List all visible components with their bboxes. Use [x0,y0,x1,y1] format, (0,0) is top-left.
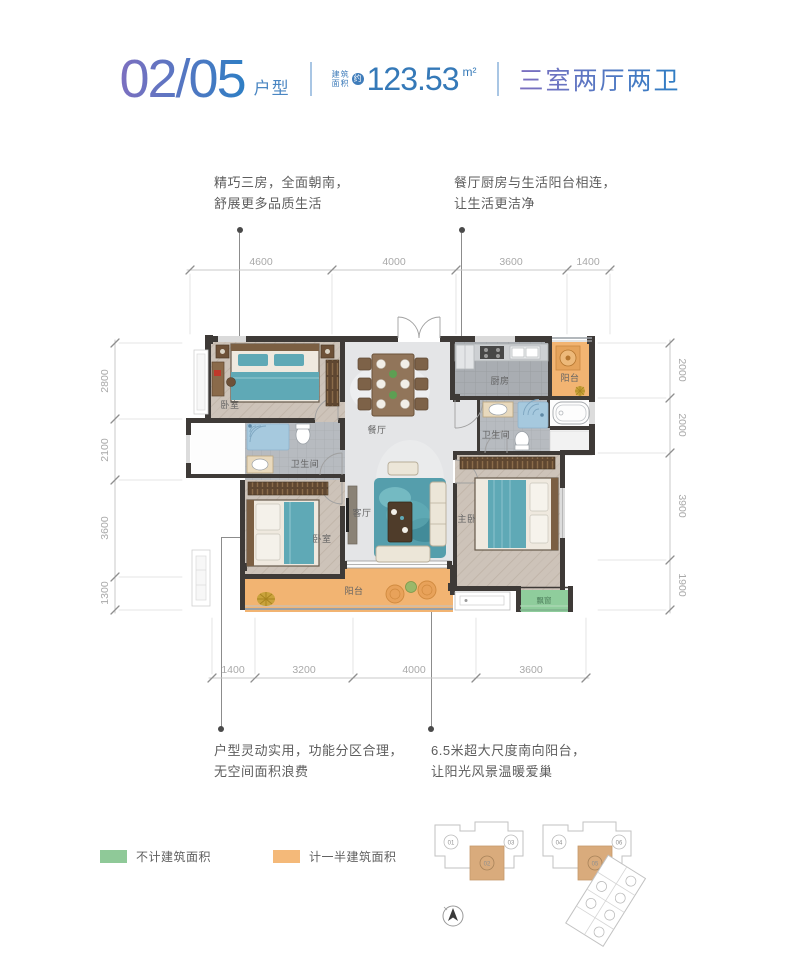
area-approx-badge: 约 [352,73,364,85]
legend-swatch-orange [273,850,300,863]
legend-label: 不计建筑面积 [136,848,211,865]
dim-label: 1900 [676,573,688,597]
room-label-bay-window: 飘窗 [537,595,552,605]
site-unit-01: 01 [448,841,455,847]
header: 02/05 户型 建筑 面积 约 123.53 m² 三室两厅两卫 [0,52,800,106]
area-label: 建筑 面积 [332,70,350,88]
legend-item-excluded-area: 不计建筑面积 [100,848,211,865]
furniture-bedroom-bottom-left: 卧室 [247,482,332,566]
dimension-bottom: 1400 3200 4000 3600 [208,618,590,682]
annotation-bottom-right: 6.5米超大尺度南向阳台， 让阳光风景温暖爱巢 [431,740,586,782]
legend-item-half-area: 计一半建筑面积 [273,848,397,865]
site-unit-02: 02 [484,862,491,868]
dim-label: 1300 [99,581,111,605]
room-label-bathroom-right: 卫生间 [482,429,511,440]
annotation-bottom-left: 户型灵动实用，功能分区合理， 无空间面积浪费 [214,740,403,782]
dim-label: 4000 [382,256,406,268]
dim-label: 1400 [221,664,245,676]
unit-number: 02/05 [119,52,244,106]
room-label-bathroom-left: 卫生间 [291,458,320,469]
leader-dot [459,227,465,233]
legend: 不计建筑面积 计一半建筑面积 [100,848,397,865]
legend-label: 计一半建筑面积 [309,848,397,865]
dimension-top: 4600 4000 3600 1400 [186,256,614,334]
dimension-left: 2800 2100 3600 1300 [99,339,182,614]
room-label-dining: 餐厅 [367,424,386,435]
unit-suffix: 户型 [254,74,290,106]
room-label-main-balcony: 阳台 [344,585,363,596]
utility-nook [190,422,245,480]
legend-swatch-green [100,850,127,863]
annotation-line: 舒展更多品质生活 [214,193,349,214]
site-key-plan: 01 02 03 04 05 06 [415,810,665,950]
header-divider [310,62,312,96]
dim-label: 4000 [402,664,426,676]
annotation-line: 让生活更洁净 [454,193,616,214]
dim-label: 4600 [249,256,273,268]
annotation-line: 无空间面积浪费 [214,761,403,782]
annotation-top-left: 精巧三房，全面朝南， 舒展更多品质生活 [214,172,349,214]
dim-label: 3600 [519,664,543,676]
room-label-bedroom-bottom-left: 卧室 [312,533,331,544]
dim-label: 3900 [676,494,688,518]
room-label-living: 客厅 [352,507,371,518]
room-label-kitchen: 厨房 [490,375,509,386]
dim-label: 3600 [99,516,111,540]
dimension-right: 2000 2000 3900 1900 [598,339,688,614]
dim-label: 3200 [292,664,316,676]
site-unit-04: 04 [556,841,563,847]
compass-icon [443,906,463,926]
area-block: 建筑 面积 约 123.53 m² [332,63,477,95]
site-unit-03: 03 [508,841,515,847]
dim-label: 2800 [99,369,111,393]
leader-dot [237,227,243,233]
room-label-service-balcony: 阳台 [560,372,579,383]
room-label-master-bedroom: 主卧 [457,513,476,524]
dim-label: 2000 [676,358,688,382]
site-unit-05: 05 [592,862,599,868]
annotation-line: 6.5米超大尺度南向阳台， [431,740,586,761]
dim-label: 3600 [499,256,523,268]
room-label-bedroom-top-left: 卧室 [220,399,239,410]
annotation-top-right: 餐厅厨房与生活阳台相连， 让生活更洁净 [454,172,616,214]
site-unit-06: 06 [616,841,623,847]
dim-label: 2100 [99,438,111,462]
annotation-line: 户型灵动实用，功能分区合理， [214,740,403,761]
header-divider [497,62,499,96]
area-label-line2: 面积 [332,79,350,88]
annotation-line: 让阳光风景温暖爱巢 [431,761,586,782]
annotation-line: 精巧三房，全面朝南， [214,172,349,193]
floorplan-drawing: 4600 4000 3600 1400 2800 2100 3600 1300 [90,250,710,690]
area-value: 123.53 [367,63,459,95]
layout-summary: 三室两厅两卫 [519,61,681,97]
area-label-line1: 建筑 [332,70,350,79]
leader-dot [428,726,434,732]
annotation-line: 餐厅厨房与生活阳台相连， [454,172,616,193]
dim-label: 2000 [676,413,688,437]
floorplan-page: 02/05 户型 建筑 面积 约 123.53 m² 三室两厅两卫 精巧三房，全… [0,0,800,969]
area-unit: m² [463,65,477,79]
leader-dot [218,726,224,732]
furniture-tub [553,402,589,424]
ac-platform [455,592,510,610]
dim-label: 1400 [576,256,600,268]
